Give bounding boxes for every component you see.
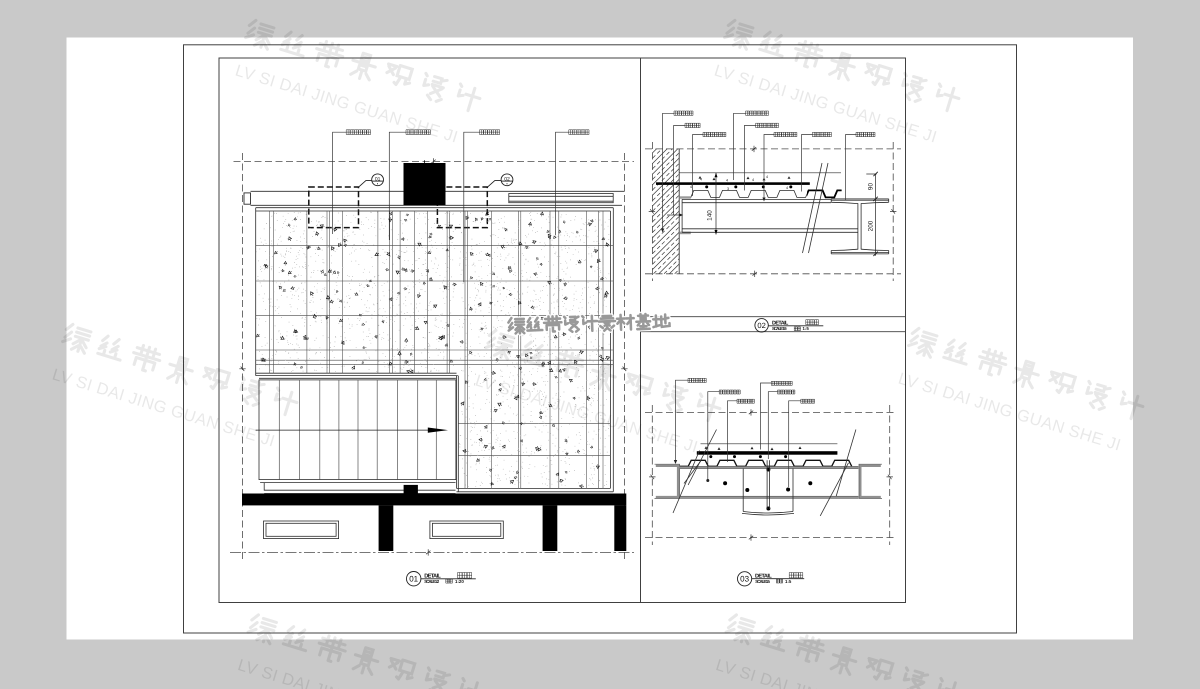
svg-text:02: 02: [757, 321, 765, 330]
svg-text:SCALE 1:2: SCALE 1:2: [424, 579, 440, 584]
svg-text:01: 01: [375, 176, 381, 182]
svg-text:200: 200: [868, 220, 875, 231]
svg-text:140: 140: [707, 210, 714, 221]
svg-text:90: 90: [868, 183, 875, 191]
svg-text:4: 4: [726, 179, 728, 183]
svg-text:02: 02: [504, 176, 510, 182]
svg-text:4: 4: [786, 186, 788, 190]
svg-text:4: 4: [690, 185, 692, 189]
svg-text:4: 4: [766, 175, 768, 179]
svg-text:SCALE 1:5: SCALE 1:5: [755, 579, 770, 584]
svg-text:01: 01: [409, 575, 418, 584]
svg-text:1:5: 1:5: [803, 326, 810, 331]
svg-text:4: 4: [700, 178, 702, 182]
svg-text:1:5: 1:5: [785, 579, 792, 584]
svg-text:SCALE 1:5: SCALE 1:5: [772, 326, 787, 331]
svg-text:03: 03: [740, 575, 749, 584]
svg-text:4: 4: [752, 178, 754, 182]
svg-text:1:20: 1:20: [455, 579, 464, 584]
